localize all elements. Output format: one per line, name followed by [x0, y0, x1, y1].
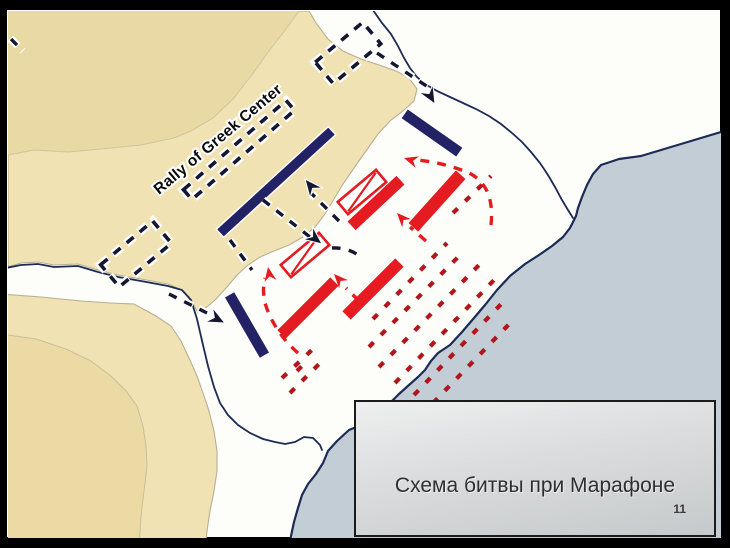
persian-line-4 — [277, 277, 340, 340]
persian-push-2 — [346, 288, 359, 301]
persian-line-3 — [342, 258, 405, 321]
page-number: 11 — [673, 502, 686, 516]
arrowhead — [262, 266, 276, 282]
caption-box: Схема битвы при Марафоне 11 — [354, 400, 716, 537]
arrowhead — [393, 209, 411, 227]
greek-arrow-curve — [332, 248, 363, 259]
persian-line-2 — [408, 170, 467, 233]
greek-right-wing — [401, 109, 464, 158]
slide: Rally of Greek Center Схема битвы при Ма… — [0, 0, 730, 548]
arrowhead — [402, 152, 419, 168]
slide-title: Схема битвы при Марафоне — [356, 474, 714, 498]
greek-left-wing — [224, 291, 270, 358]
